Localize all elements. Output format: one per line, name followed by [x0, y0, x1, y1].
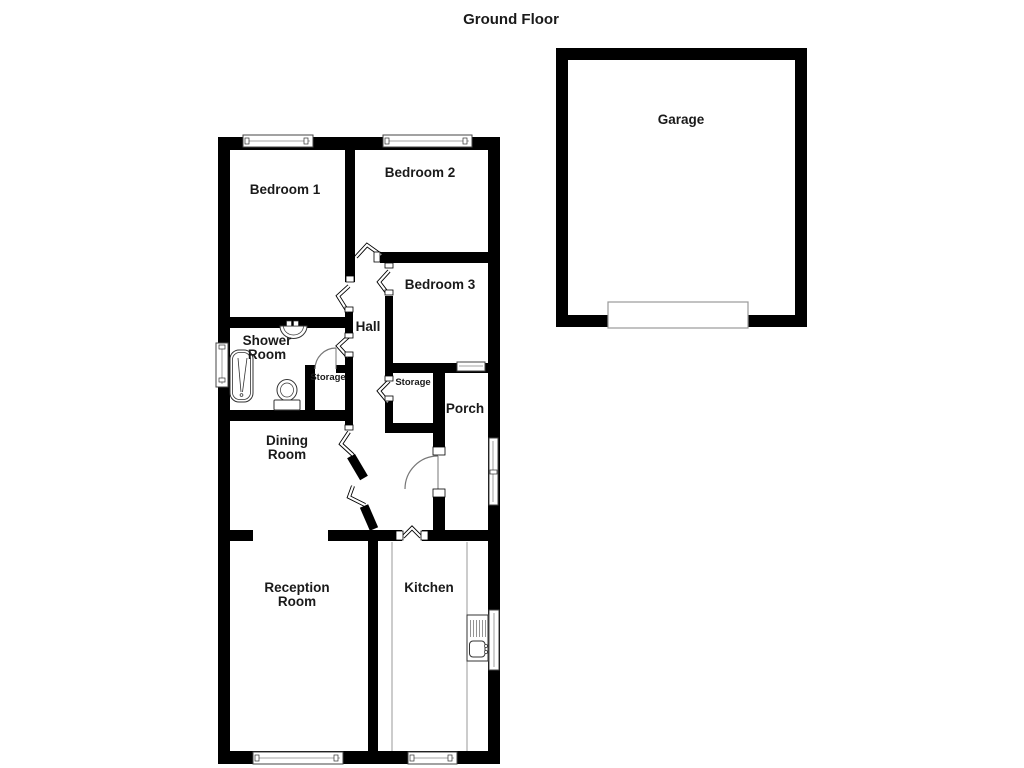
room-label-bedroom-2: Bedroom 2: [385, 166, 456, 180]
room-label-storage-porch: Storage: [395, 378, 430, 388]
toilet-icon: [274, 380, 300, 411]
room-label-dining-room: Dining Room: [252, 434, 322, 462]
garage-walls: [556, 48, 807, 327]
room-label-hall: Hall: [356, 320, 381, 334]
floor-plan: Ground Floor Bedroom 1 Bedroom 2 Bedroom…: [0, 0, 1024, 768]
room-label-porch: Porch: [446, 402, 484, 416]
window-reception: [253, 752, 343, 764]
window-shower-room: [216, 343, 228, 387]
kitchen-sink-icon: [467, 615, 488, 661]
room-label-bedroom-3: Bedroom 3: [405, 278, 476, 292]
storage-door-arc: [315, 348, 336, 369]
window-kitchen-south: [408, 752, 457, 764]
room-label-bedroom-1: Bedroom 1: [250, 183, 321, 197]
wall-end-caps: [345, 252, 445, 540]
door-leaf-corridor-lower: [349, 486, 365, 505]
door-leaf-corridor-upper: [341, 432, 353, 455]
double-door-icon: [403, 528, 421, 537]
room-label-reception-room: Reception Room: [249, 581, 345, 609]
window-bedroom1: [243, 135, 313, 147]
corridor-angled-walls: [351, 456, 374, 529]
room-label-garage: Garage: [658, 113, 705, 127]
room-label-storage-hall: Storage: [310, 373, 345, 383]
room-label-kitchen: Kitchen: [404, 581, 454, 595]
window-entry-side: [489, 438, 498, 505]
page-title: Ground Floor: [463, 13, 559, 27]
window-porch-top: [457, 362, 485, 371]
front-door-arc: [405, 456, 438, 489]
floor-plan-drawing: [0, 0, 1024, 768]
kitchen-counter-line: [392, 542, 467, 751]
window-kitchen-east: [489, 610, 499, 670]
room-label-shower-room: Shower Room: [232, 334, 302, 362]
window-bedroom2: [383, 135, 472, 147]
garage-door: [608, 302, 748, 328]
